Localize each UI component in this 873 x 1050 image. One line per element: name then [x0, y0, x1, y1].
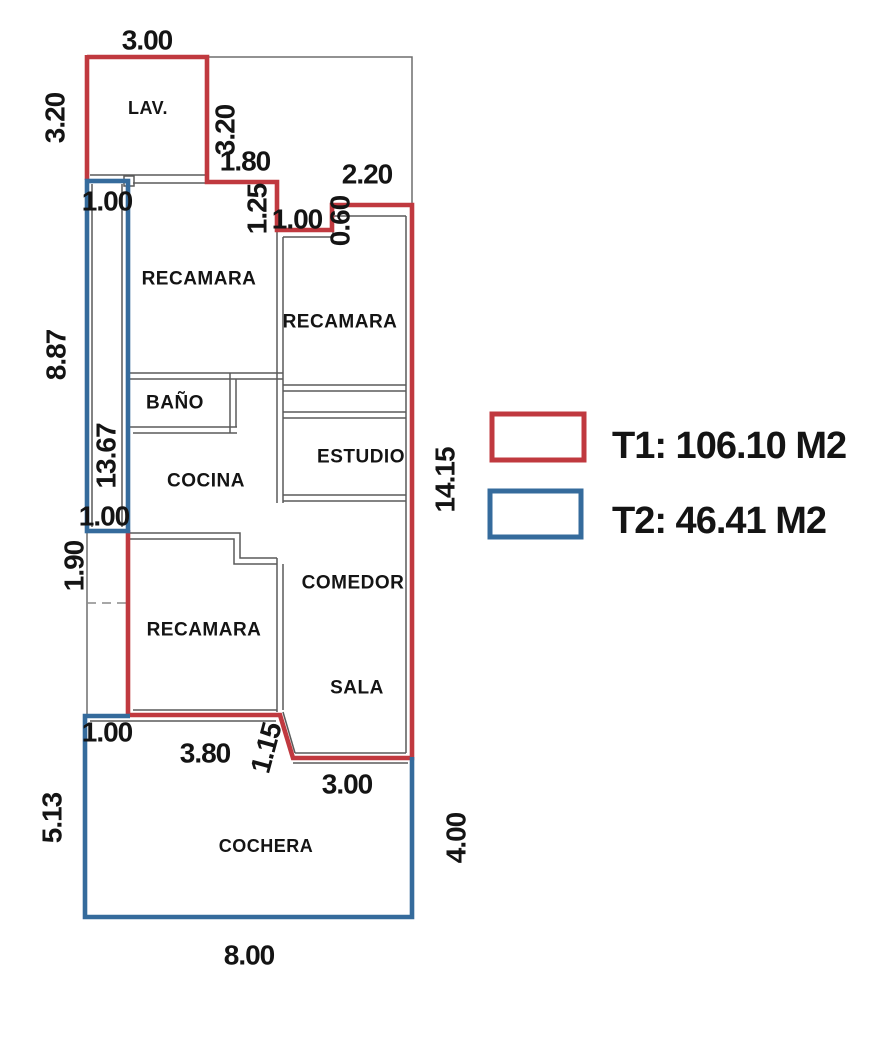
dim-patio-2-20: 2.20: [342, 159, 393, 190]
dim-left-8-87: 8.87: [41, 329, 72, 380]
interior-walls: [90, 175, 408, 763]
dim-cochera-5-13: 5.13: [37, 792, 68, 843]
dim-left-1-90: 1.90: [59, 540, 90, 591]
room-label-recamara-s: RECAMARA: [147, 620, 262, 641]
dim-right-14-15: 14.15: [430, 447, 461, 512]
dim-bottom-3-80: 3.80: [180, 738, 231, 769]
dim-lav-left: 3.20: [40, 92, 71, 143]
room-label-recamara-ne: RECAMARA: [283, 312, 398, 333]
dim-strip-bot-1-00: 1.00: [79, 501, 130, 532]
dim-step-0-60: 0.60: [325, 195, 356, 246]
legend: T1: 106.10 M2 T2: 46.41 M2: [490, 414, 846, 542]
dim-cochera-8-00: 8.00: [224, 940, 275, 971]
dim-offset-1-80: 1.80: [220, 146, 271, 177]
legend-label-t2: T2: 46.41 M2: [612, 500, 826, 542]
room-label-sala: SALA: [330, 678, 384, 699]
t2-boundary: [85, 181, 412, 917]
room-label-cocina: COCINA: [167, 471, 245, 492]
dim-cochera-1-00: 1.00: [82, 717, 133, 748]
room-label-bano: BAÑO: [146, 392, 204, 414]
dim-cochera-4-00: 4.00: [441, 812, 472, 863]
dim-bottom-3-00: 3.00: [322, 769, 373, 800]
legend-swatch-t2: [490, 491, 581, 537]
room-label-cochera: COCHERA: [219, 836, 314, 856]
legend-swatch-t1: [492, 414, 584, 460]
room-label-lav: LAV.: [128, 98, 168, 118]
dim-offset-1-25: 1.25: [242, 183, 273, 234]
room-label-recamara-nw: RECAMARA: [142, 269, 257, 290]
room-label-estudio: ESTUDIO: [317, 447, 405, 468]
wall-recamara-s-top-step-b: [130, 539, 277, 564]
t2-cochera: [85, 716, 412, 917]
dim-step-1-00: 1.00: [272, 204, 323, 235]
dim-diag-1-15: 1.15: [244, 719, 287, 776]
legend-label-t1: T1: 106.10 M2: [612, 425, 846, 467]
wall-recamara-s-top-step-a: [130, 533, 277, 558]
dim-top-width: 3.00: [122, 25, 173, 56]
floor-plan-canvas: LAV. RECAMARA RECAMARA BAÑO ESTUDIO COCI…: [0, 0, 873, 1050]
dim-strip-13-67: 13.67: [91, 423, 122, 488]
dim-strip-top-1-00: 1.00: [82, 186, 133, 217]
room-label-comedor: COMEDOR: [302, 573, 405, 594]
